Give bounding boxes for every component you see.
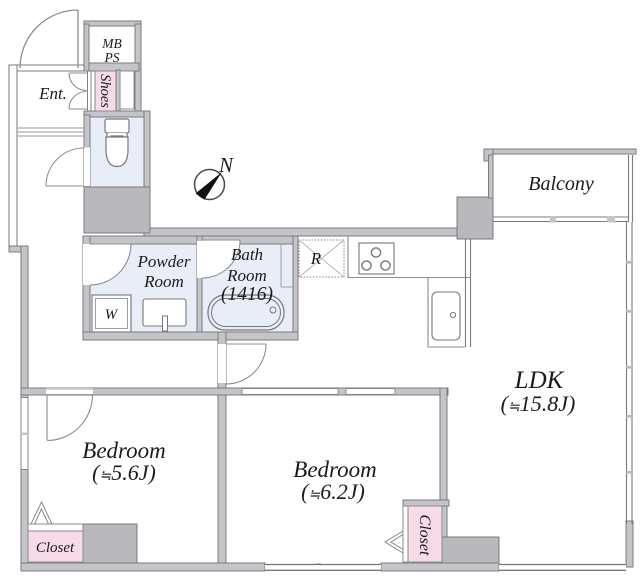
svg-text:Balcony: Balcony bbox=[528, 173, 594, 195]
svg-text:W: W bbox=[105, 307, 119, 323]
svg-text:Shoes: Shoes bbox=[97, 74, 113, 108]
svg-text:Bath: Bath bbox=[231, 245, 263, 264]
svg-text:Closet: Closet bbox=[416, 515, 433, 556]
svg-text:N: N bbox=[218, 153, 234, 177]
svg-text:R: R bbox=[310, 249, 322, 268]
svg-text:Room: Room bbox=[226, 266, 267, 285]
svg-text:Powder: Powder bbox=[137, 252, 191, 271]
svg-text:LDK: LDK bbox=[514, 367, 565, 394]
svg-text:Ent.: Ent. bbox=[38, 84, 67, 103]
svg-text:MB: MB bbox=[101, 36, 122, 51]
svg-text:Closet: Closet bbox=[36, 540, 75, 556]
svg-text:PS: PS bbox=[104, 50, 120, 65]
svg-text:(1416): (1416) bbox=[221, 284, 273, 305]
svg-text:Room: Room bbox=[143, 272, 184, 291]
